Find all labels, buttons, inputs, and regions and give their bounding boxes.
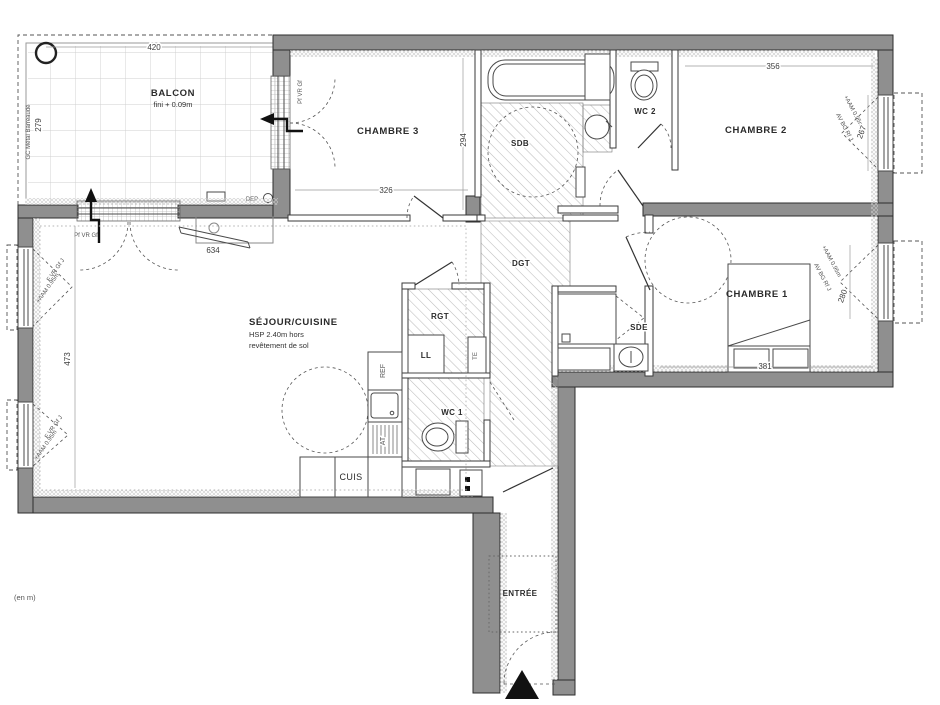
balcony: 420 279 GC Métal Barreaudé BALCON fini +… [18, 35, 278, 205]
entry-arrow [505, 670, 539, 699]
window-bedroom2: +AAM 0.95m AV BG Rf J 267 [834, 93, 922, 173]
door-bedroom3 [414, 196, 443, 218]
bedroom3-depth-dim: 294 [459, 133, 468, 147]
bedroom1-width-dim: 381 [758, 362, 772, 371]
balcony-post [36, 43, 56, 63]
bedroom3-width-dim: 326 [379, 186, 393, 195]
bedroom1-label: CHAMBRE 1 [726, 289, 788, 300]
bedroom1-window-dim: 280 [836, 288, 849, 304]
window-bedroom1: +AAM 0.95m AV BG Rf J 280 [812, 241, 922, 323]
units-note: (en m) [14, 593, 36, 602]
door-rgt [415, 262, 452, 285]
intercom [460, 470, 482, 496]
sde-fixtures [558, 294, 648, 371]
door-sde [616, 296, 644, 340]
bay-leader [179, 227, 250, 248]
wc1-label: WC 1 [441, 408, 463, 417]
pillow [773, 349, 808, 368]
toilet-wc1 [422, 423, 454, 451]
wc2-fixtures [631, 62, 658, 100]
bedroom2-window-dim: 267 [855, 124, 868, 140]
bedroom2-label: CHAMBRE 2 [725, 125, 787, 136]
balcony-width-dim: 420 [147, 43, 161, 52]
panel-label: TE [473, 352, 479, 360]
sde-cabinet [558, 348, 610, 370]
wc2-label: WC 2 [634, 107, 656, 116]
kitchen-label: CUIS [339, 472, 362, 482]
balcony-depth-dim: 279 [34, 118, 43, 132]
hob-label: AT [380, 436, 387, 445]
wc1-fixtures [422, 421, 468, 453]
living-note2: revêtement de sol [249, 341, 309, 350]
bedroom1-furniture [728, 264, 810, 372]
entry-label: ENTRÉE [503, 589, 538, 598]
shower [558, 294, 616, 344]
bedroom2-width-dim: 356 [766, 62, 780, 71]
door-apartment-entry [503, 468, 553, 492]
dgt-label: DGT [512, 259, 530, 268]
living-bay-dim: 634 [206, 246, 220, 255]
bedroom3-door-label: Pf VR Gf [298, 80, 304, 104]
balcony-railing-note: GC Métal Barreaudé [26, 104, 32, 160]
door-wc2 [638, 124, 661, 148]
living-window-label: Pf VR Gf [74, 233, 98, 239]
rgt-label: RGT [431, 312, 449, 321]
balcony-door-bedroom3: Pf VR Gf [271, 76, 335, 169]
living-note1: HSP 2.40m hors [249, 330, 304, 339]
window-note: AV BG Rf J [812, 263, 831, 293]
turning-circle-bedroom1 [645, 217, 731, 303]
sdb-shelf [585, 54, 610, 100]
washer-label: LL [421, 351, 432, 360]
balcony-finish-note: fini + 0.09m [154, 100, 193, 109]
floor-plan: 420 279 GC Métal Barreaudé BALCON fini +… [0, 0, 940, 705]
door-bedroom2 [618, 170, 643, 206]
sdb-radiator [576, 167, 585, 197]
kitchen-sink [371, 393, 398, 418]
living-label: SÉJOUR/CUISINE [249, 317, 338, 328]
door-bedroom1 [626, 237, 650, 290]
door-entry-swing [504, 632, 556, 684]
floor-hatches [408, 103, 612, 466]
sdb-label: SDB [511, 139, 529, 148]
living-depth-dim: 473 [63, 352, 72, 366]
sdb-floor [481, 103, 583, 218]
floor-plan-page: 420 279 GC Métal Barreaudé BALCON fini +… [0, 0, 940, 705]
sde-label: SDE [630, 323, 648, 332]
balcony-label: BALCON [151, 88, 195, 99]
turning-circle-living [282, 367, 368, 453]
bedroom3-label: CHAMBRE 3 [357, 126, 419, 137]
balcony-tiles [28, 46, 278, 205]
washbasin-sdb [585, 115, 609, 139]
fridge-label: REF [380, 364, 387, 378]
window-note: AV BG Rf J [834, 113, 853, 143]
